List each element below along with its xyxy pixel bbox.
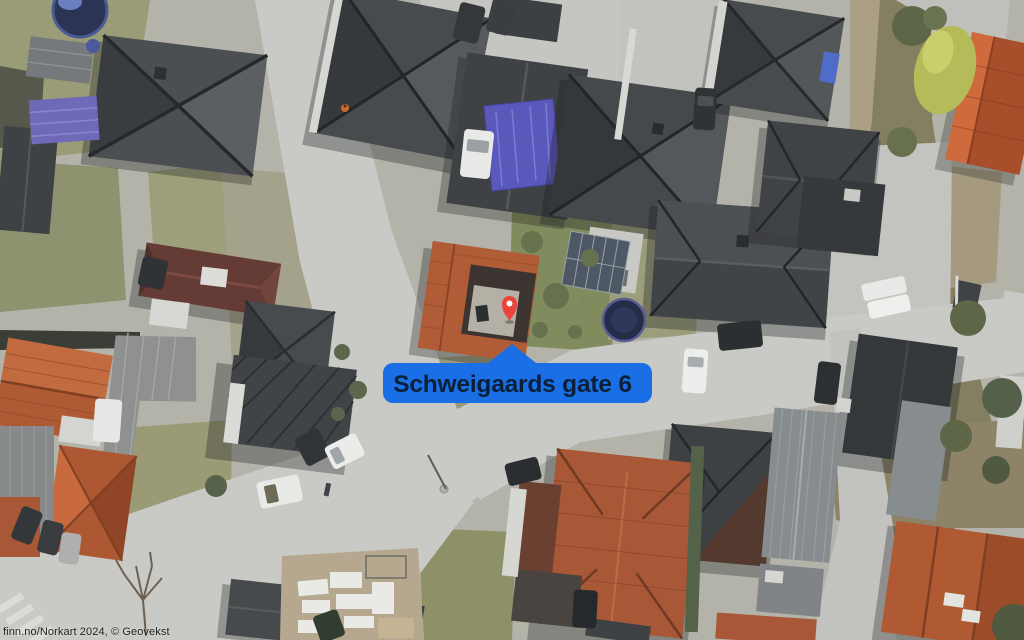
shed-roof (756, 563, 824, 616)
house-roof (698, 0, 845, 131)
map-viewport[interactable]: Schweigaards gate 6 finn.no/Norkart 2024… (0, 0, 1024, 640)
purple-tarp (29, 96, 100, 145)
trampoline (603, 299, 645, 341)
house-roof (81, 34, 268, 185)
car (460, 129, 495, 180)
car (572, 589, 598, 628)
van (717, 320, 764, 351)
car (693, 87, 718, 130)
car (681, 348, 708, 394)
label-text: Schweigaards gate 6 (393, 371, 632, 398)
person (341, 104, 349, 112)
garage-roof (796, 176, 885, 256)
van (92, 398, 122, 443)
satellite-imagery: Schweigaards gate 6 (0, 0, 1024, 640)
construction-site (280, 548, 424, 640)
shed-roof (761, 407, 842, 562)
map-attribution: finn.no/Norkart 2024, © Geovekst (3, 626, 170, 638)
garage-roof (26, 36, 94, 84)
car (58, 532, 82, 565)
